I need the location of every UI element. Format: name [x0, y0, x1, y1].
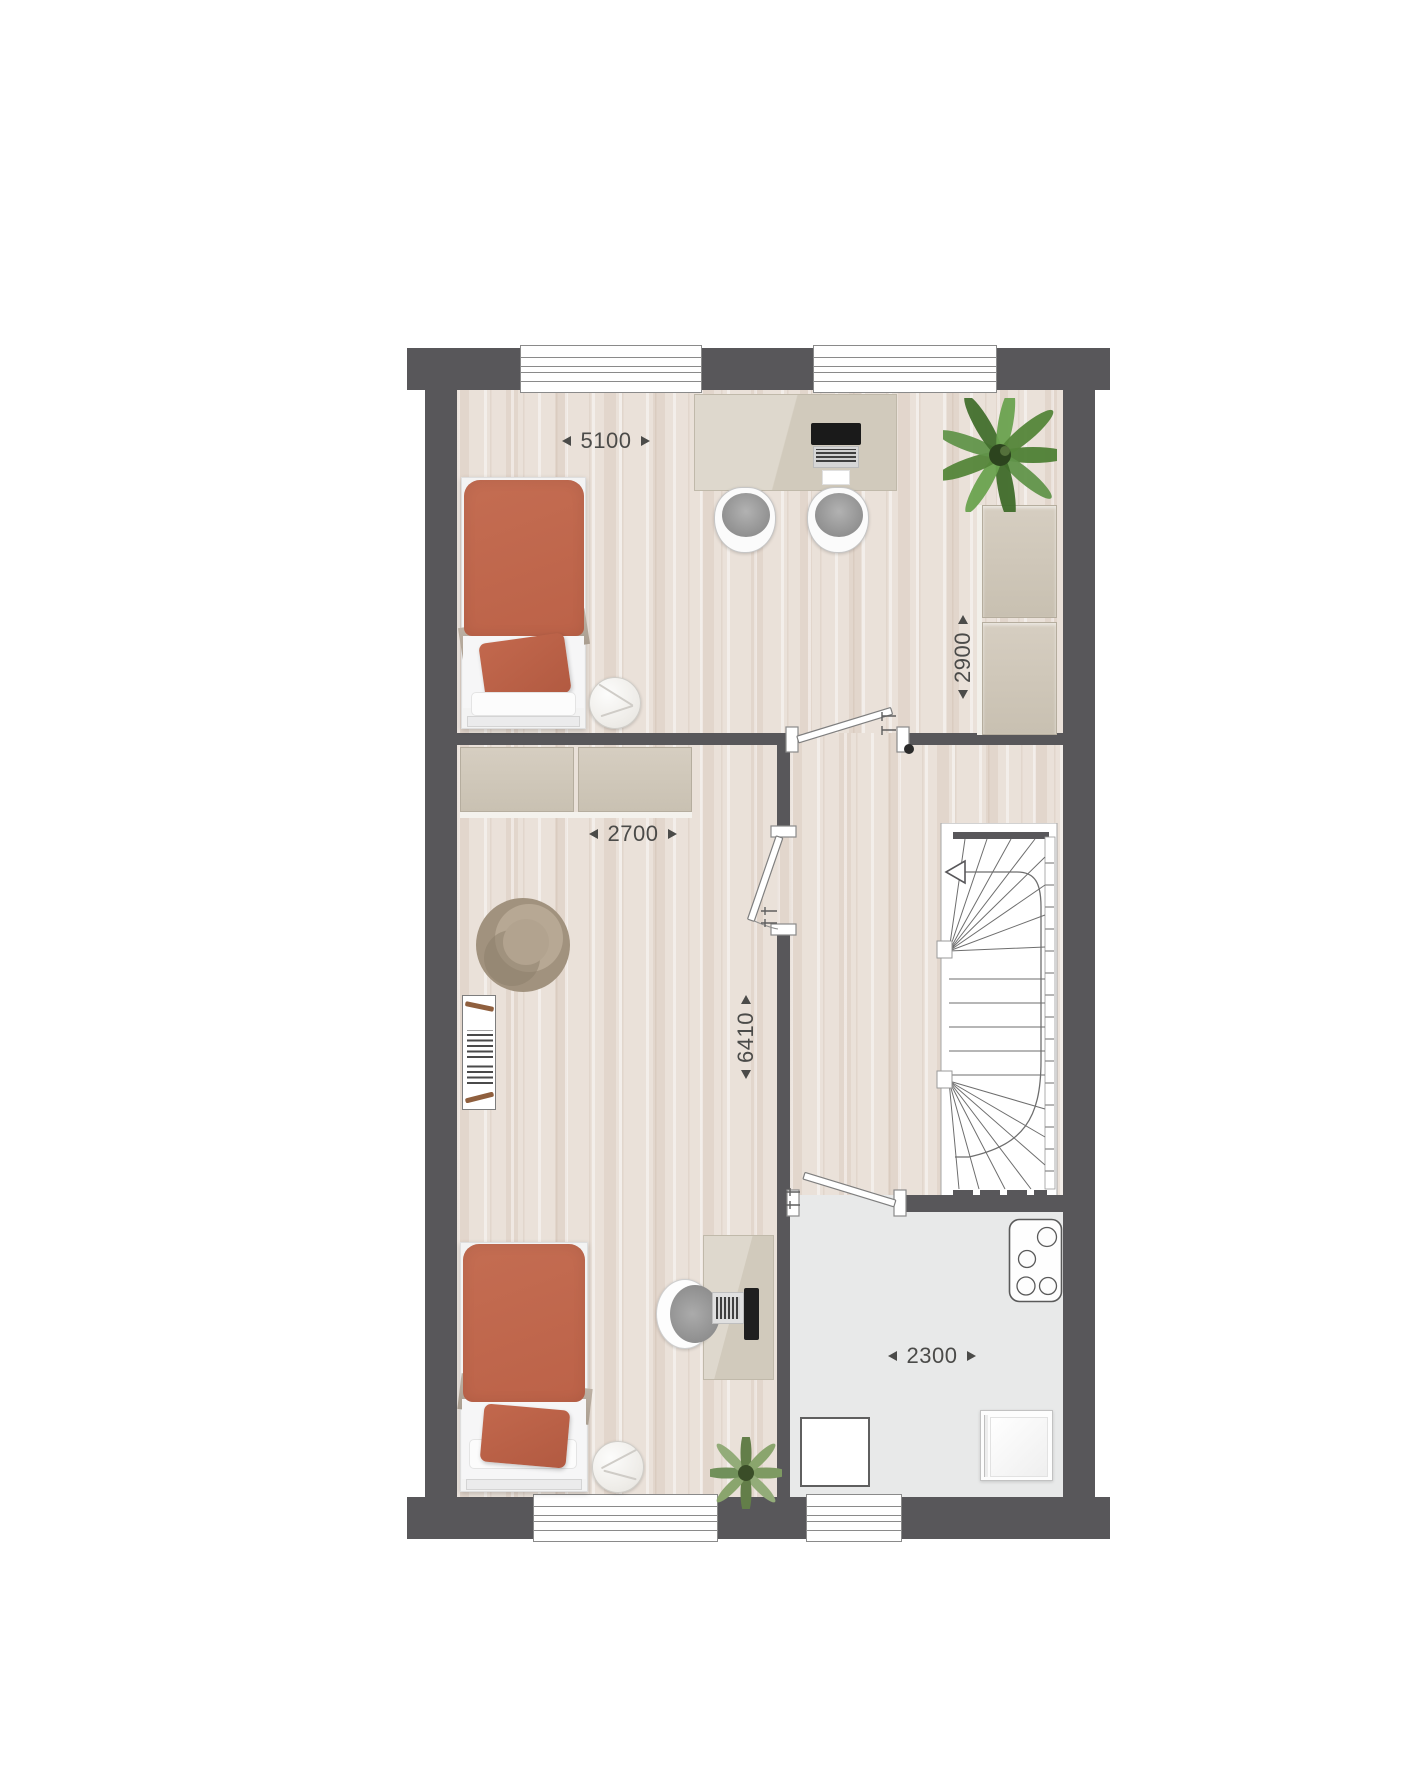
dimension-arrow-up-icon — [741, 995, 751, 1004]
dimension-top-room-width: 5100 — [521, 429, 691, 453]
dimension-arrow-down-icon — [741, 1070, 751, 1079]
dimension-arrow-right-icon — [967, 1351, 976, 1361]
dimension-arrow-left-icon — [888, 1351, 897, 1361]
dimension-bathroom-width: 2300 — [847, 1344, 1017, 1368]
dimension-arrow-down-icon — [958, 690, 968, 699]
dimension-label: 2900 — [950, 632, 976, 683]
dimension-arrow-right-icon — [641, 436, 650, 446]
dimension-arrow-up-icon — [958, 615, 968, 624]
dimension-label: 2700 — [608, 821, 659, 847]
dimension-right-wardrobe-height: 2900 — [941, 592, 985, 722]
door-bedroom-top-icon — [786, 708, 914, 754]
doors-overlay — [0, 0, 1417, 1772]
door-bathroom-icon — [786, 1172, 906, 1216]
dimension-rooms-depth: 6410 — [724, 972, 768, 1102]
dimension-label: 6410 — [733, 1012, 759, 1063]
dimension-middle-room-width: 2700 — [548, 822, 718, 846]
dimension-arrow-right-icon — [668, 829, 677, 839]
floor-plan: 5100 2900 2700 6410 2300 — [0, 0, 1417, 1772]
dimension-arrow-left-icon — [589, 829, 598, 839]
dimension-label: 5100 — [581, 428, 632, 454]
dimension-arrow-left-icon — [562, 436, 571, 446]
dimension-label: 2300 — [907, 1343, 958, 1369]
door-bedroom-middle-icon — [748, 826, 796, 935]
